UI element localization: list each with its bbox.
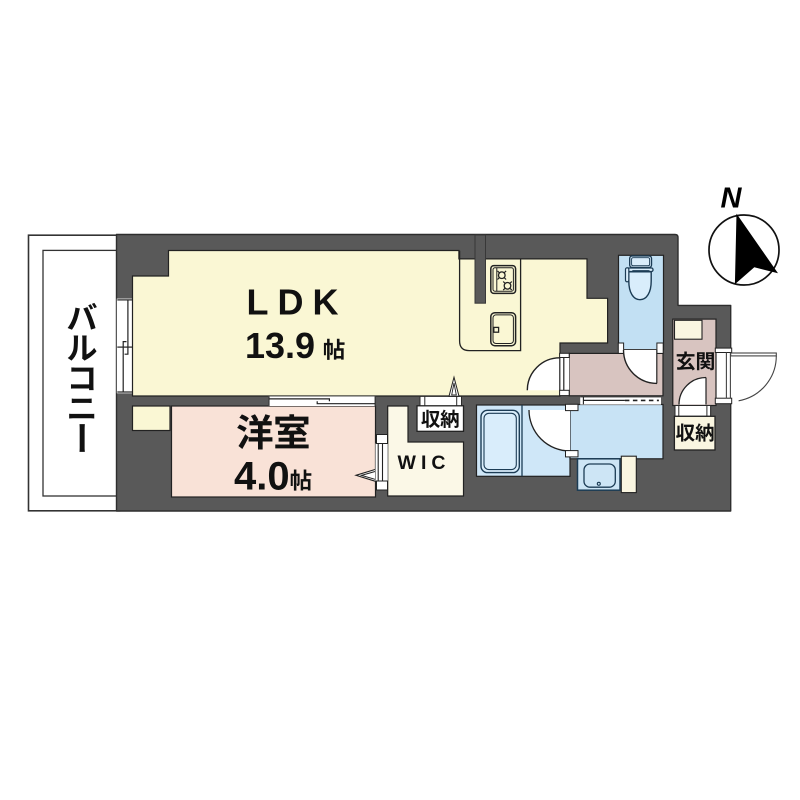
svg-text:WIC: WIC: [398, 452, 451, 474]
svg-text:13.9: 13.9: [245, 325, 315, 366]
svg-text:N: N: [721, 183, 743, 215]
svg-text:4.0: 4.0: [234, 455, 290, 499]
svg-text:LDK: LDK: [247, 281, 348, 322]
